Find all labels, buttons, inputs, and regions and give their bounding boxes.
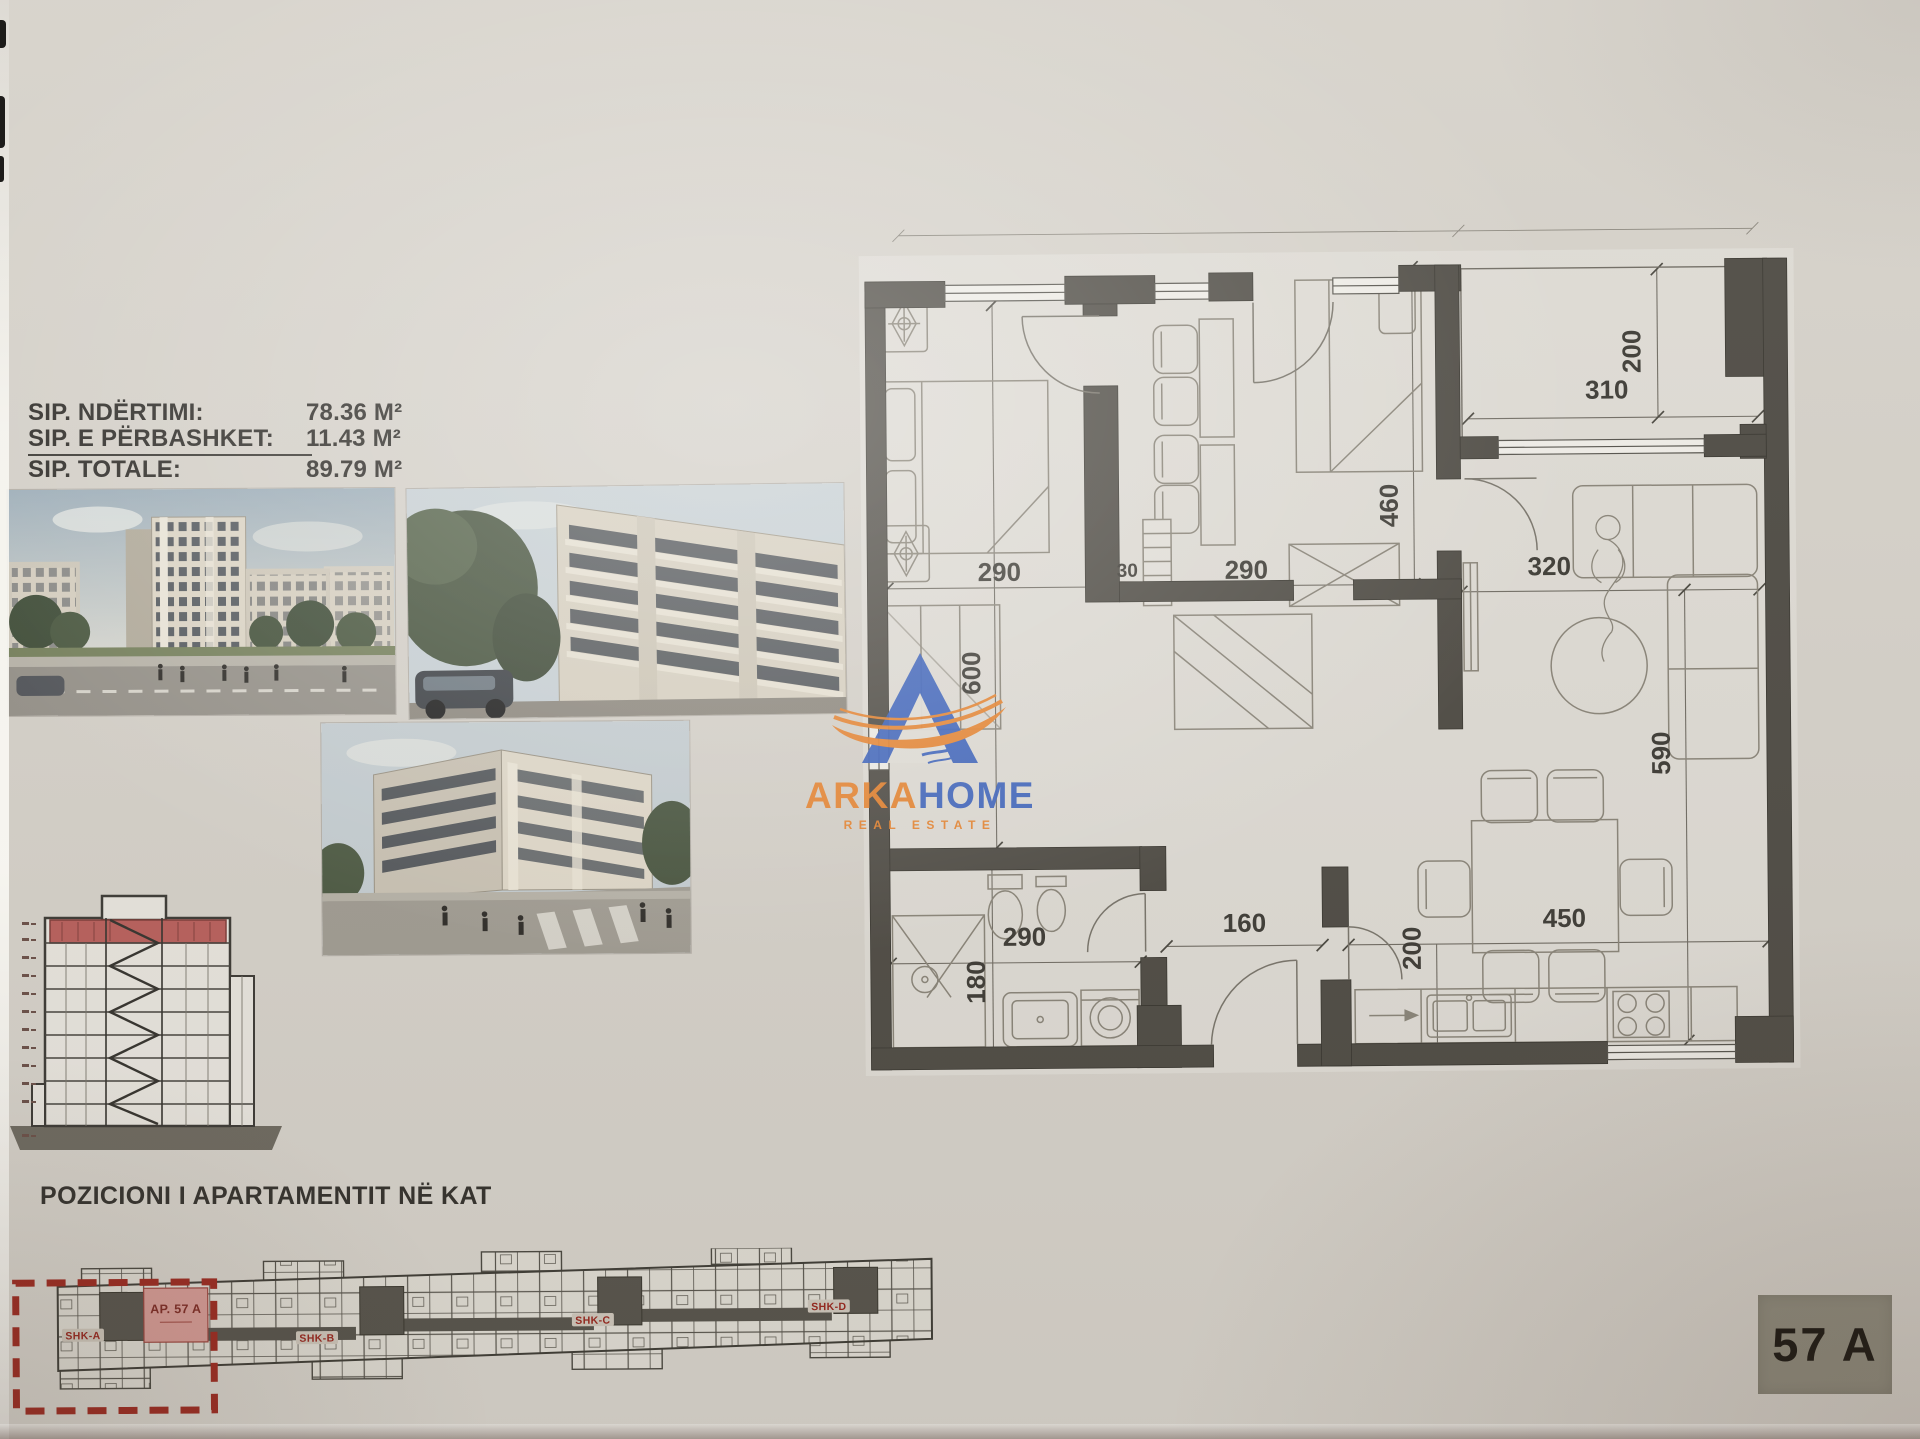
logo-word-arka: ARKA bbox=[805, 775, 918, 816]
stair-core bbox=[360, 1287, 404, 1335]
unit-badge-text: 57 A bbox=[1772, 1317, 1878, 1372]
dim-label: 320 bbox=[1527, 551, 1571, 581]
boat-sail-icon bbox=[830, 650, 1010, 770]
dim-label: 590 bbox=[1646, 731, 1676, 775]
dim-label: 290 bbox=[1003, 921, 1047, 951]
table-row: SIP. TOTALE: 89.79 M² bbox=[28, 457, 428, 483]
core-label-b: SHK-B bbox=[299, 1332, 334, 1344]
table-row: SIP. E PËRBASHKET: 11.43 M² bbox=[28, 426, 428, 452]
dim-label: 200 bbox=[1616, 330, 1646, 374]
building-section-diagram bbox=[10, 886, 282, 1168]
stair-core bbox=[100, 1292, 144, 1340]
logo-word-home: HOME bbox=[918, 775, 1035, 816]
scan-edge bbox=[0, 0, 9, 1439]
row-value: 89.79 M² bbox=[306, 457, 428, 483]
apartment-floor-plan: 290 30 290 460 600 310 200 320 590 160 2… bbox=[858, 218, 1800, 1076]
row-label: SIP. E PËRBASHKET: bbox=[28, 426, 306, 452]
dim-label: 160 bbox=[1223, 908, 1267, 938]
core-label-d: SHK-D bbox=[811, 1301, 846, 1313]
position-section-title: POZICIONI I APARTAMENTIT NË KAT bbox=[40, 1182, 492, 1211]
row-label: SIP. NDËRTIMI: bbox=[28, 400, 306, 426]
dim-label: 290 bbox=[978, 557, 1022, 587]
apartment-label: AP. 57 A bbox=[150, 1302, 201, 1316]
dim-label: 460 bbox=[1374, 484, 1404, 528]
row-value: 11.43 M² bbox=[306, 426, 428, 452]
area-table: SIP. NDËRTIMI: 78.36 M² SIP. E PËRBASHKE… bbox=[28, 400, 428, 483]
dim-label: 30 bbox=[1117, 561, 1138, 582]
scan-artifact bbox=[0, 96, 5, 148]
dim-label: 310 bbox=[1585, 374, 1629, 404]
building-photo-1 bbox=[7, 488, 395, 716]
scan-artifact bbox=[0, 20, 6, 48]
floor-strip-plan: AP. 57 A SHK-A SHK-B SHK-C SHK-D bbox=[11, 1247, 942, 1425]
row-value: 78.36 M² bbox=[306, 400, 428, 426]
dim-label: 180 bbox=[961, 960, 991, 1004]
row-label: SIP. TOTALE: bbox=[28, 457, 306, 483]
dim-label: 450 bbox=[1543, 903, 1587, 933]
unit-badge: 57 A bbox=[1758, 1295, 1892, 1394]
logo-wordmark: ARKAHOME bbox=[790, 777, 1050, 815]
table-row: SIP. NDËRTIMI: 78.36 M² bbox=[28, 400, 428, 426]
brochure-page: SIP. NDËRTIMI: 78.36 M² SIP. E PËRBASHKE… bbox=[0, 0, 1920, 1439]
highlighted-floor bbox=[50, 920, 226, 943]
logo-tagline: REAL ESTATE bbox=[790, 818, 1050, 832]
core-label-a: SHK-A bbox=[65, 1330, 100, 1342]
core-label-c: SHK-C bbox=[575, 1315, 610, 1327]
building-photo-3 bbox=[321, 721, 691, 956]
building-photo-2 bbox=[406, 483, 846, 719]
scan-artifact bbox=[0, 156, 4, 182]
dim-label: 200 bbox=[1396, 926, 1426, 970]
brand-logo: ARKAHOME REAL ESTATE bbox=[790, 650, 1050, 832]
scan-bottom-shade bbox=[0, 1424, 1920, 1439]
dim-label: 290 bbox=[1224, 555, 1268, 585]
